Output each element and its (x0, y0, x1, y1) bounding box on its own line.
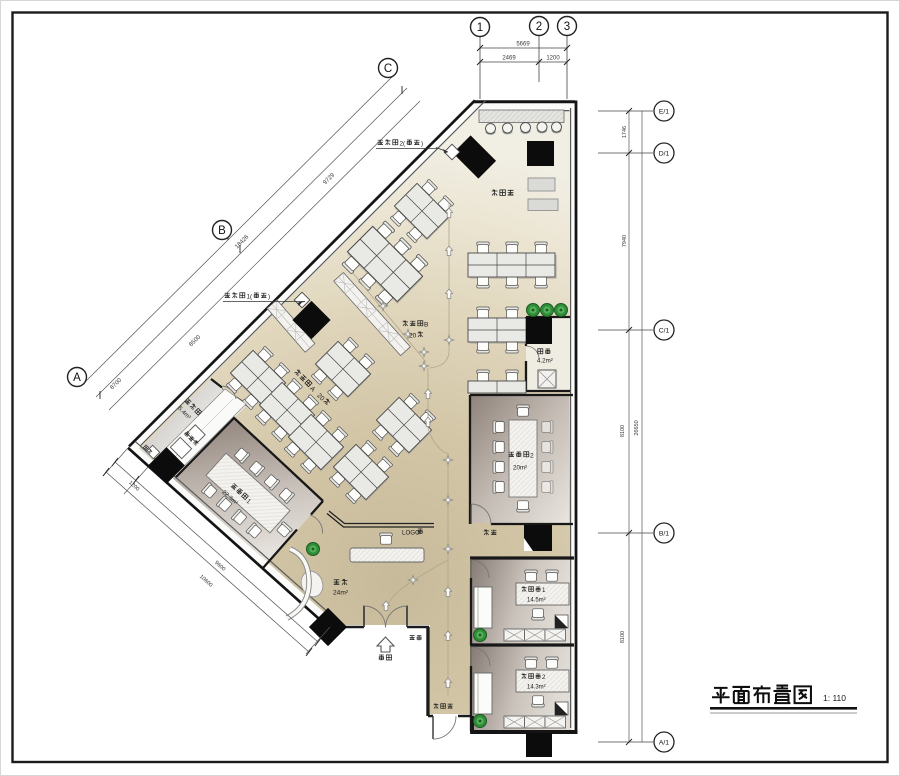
svg-text:C: C (384, 63, 392, 75)
svg-text:1200: 1200 (546, 56, 560, 62)
svg-text:8100: 8100 (620, 425, 626, 437)
svg-text:8100: 8100 (620, 631, 626, 643)
svg-text:4.2m²: 4.2m² (537, 358, 553, 365)
svg-text:7940: 7940 (622, 235, 628, 247)
svg-text:20m²: 20m² (513, 465, 527, 472)
svg-text:20: 20 (409, 333, 417, 340)
svg-text:5669: 5669 (516, 42, 530, 48)
svg-text:B/1: B/1 (659, 531, 669, 538)
svg-text:1746: 1746 (622, 126, 628, 138)
svg-text:24m²: 24m² (333, 590, 349, 597)
svg-text:): ) (268, 294, 270, 301)
svg-text:1: 110: 1: 110 (823, 693, 846, 703)
svg-text:3: 3 (564, 21, 570, 33)
svg-text:2469: 2469 (502, 56, 516, 62)
svg-text:14.3m²: 14.3m² (527, 685, 546, 691)
svg-text:A: A (73, 372, 81, 384)
svg-text:): ) (421, 141, 423, 148)
svg-text:C/1: C/1 (659, 328, 670, 335)
svg-text:2: 2 (542, 674, 546, 681)
svg-text:14.5m²: 14.5m² (527, 598, 546, 604)
svg-text:B: B (424, 322, 429, 329)
svg-text:B: B (218, 225, 226, 237)
svg-text:E/1: E/1 (659, 109, 669, 116)
svg-text:26650: 26650 (634, 420, 640, 435)
svg-text:LOGO: LOGO (402, 530, 420, 537)
svg-text:2(: 2( (400, 141, 407, 148)
svg-text:A/1: A/1 (659, 740, 669, 747)
svg-text:2: 2 (530, 453, 534, 460)
svg-text:2: 2 (536, 21, 542, 33)
svg-text:1: 1 (477, 22, 483, 34)
svg-text:1(: 1( (247, 294, 254, 301)
svg-text:1: 1 (542, 587, 546, 594)
svg-text:D/1: D/1 (659, 151, 670, 158)
